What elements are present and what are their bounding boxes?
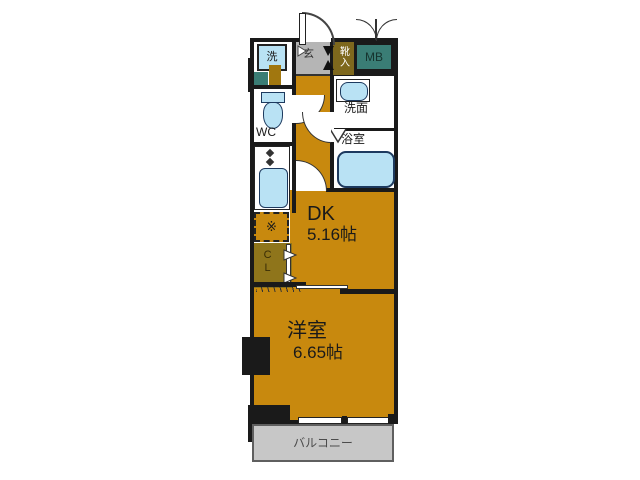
counter-box-icon xyxy=(269,65,281,85)
balcony-label: バルコニー xyxy=(293,437,353,450)
plumbing-box-icon xyxy=(254,72,268,85)
western-room-label: 洋室 xyxy=(285,321,329,342)
meter-box-door-post xyxy=(375,19,377,40)
meter-box-door-arc-left xyxy=(356,19,377,41)
washer-label: 洗 xyxy=(267,52,278,64)
bathtub-icon xyxy=(337,151,395,188)
closet-label: CL xyxy=(261,249,273,275)
wall xyxy=(326,188,394,192)
meter-box-door-arc-right xyxy=(376,19,397,41)
kitchen-sink-icon xyxy=(259,168,288,208)
genkan-step-icon xyxy=(297,45,307,57)
shoe-door-swing-icon xyxy=(322,45,335,72)
meter-box: MB xyxy=(354,42,394,72)
stove-mark: ※ xyxy=(266,220,277,234)
balcony-window-end xyxy=(388,414,397,424)
balcony-window-pane xyxy=(347,417,389,424)
stove-space: ※ xyxy=(254,212,289,242)
wall xyxy=(292,42,296,95)
dk-size-label: 5.16帖 xyxy=(293,226,371,244)
sink-basin-icon xyxy=(340,82,368,101)
shoe-cabinet-label: 靴入 xyxy=(337,46,348,68)
western-room-size-label: 6.65帖 xyxy=(281,344,355,362)
sliding-partition-wall xyxy=(340,289,394,294)
balcony: バルコニー xyxy=(252,424,394,462)
bathroom-folding-door-icon xyxy=(329,128,347,144)
entrance-door-arc xyxy=(302,12,335,45)
wc-label: WC xyxy=(256,126,276,139)
entrance-door-leaf xyxy=(299,13,306,45)
floorplan-canvas: 靴入 MB 玄 洗 WC 洗面 浴室 ※ CL xyxy=(0,0,640,480)
pillar xyxy=(242,337,270,375)
balcony-window-pane xyxy=(298,417,342,424)
washroom-label: 洗面 xyxy=(344,102,368,115)
dk-label: DK xyxy=(299,204,343,225)
meter-box-label: MB xyxy=(365,51,383,64)
